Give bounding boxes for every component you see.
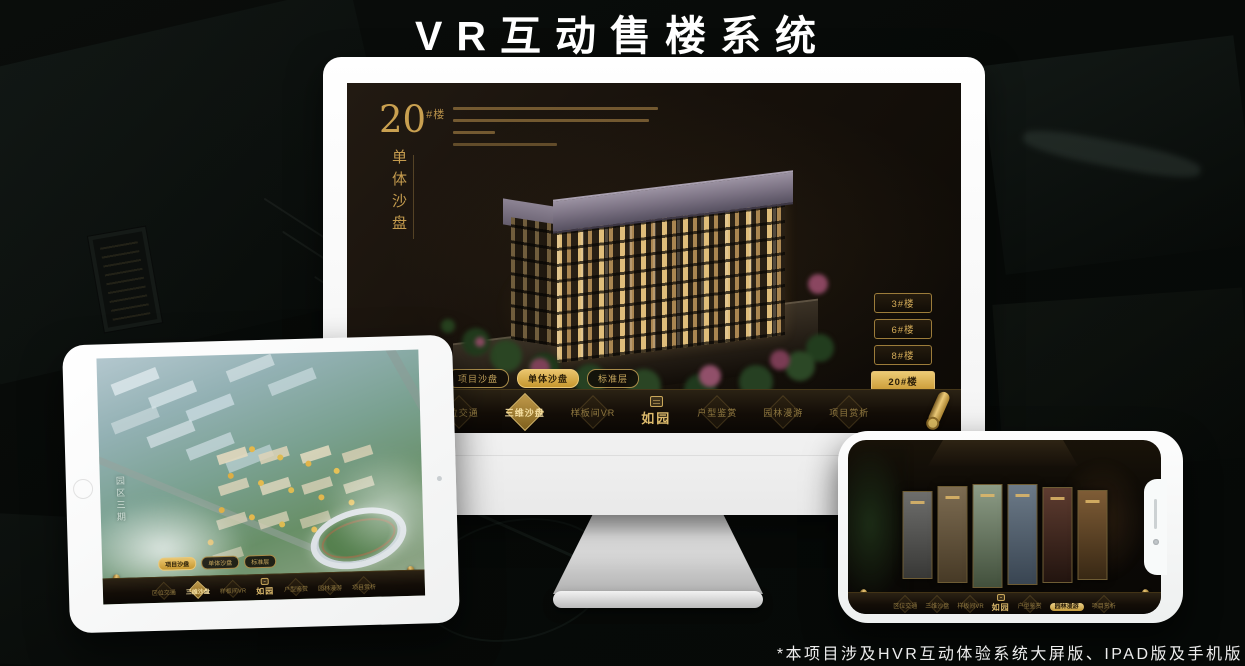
nav-item-project-gallery[interactable]: 项目赏析: [1092, 595, 1116, 613]
floor-button-6[interactable]: 6#楼: [874, 319, 932, 339]
floor-number: 20: [379, 98, 426, 141]
brand-logo[interactable]: 如园: [992, 594, 1010, 613]
page-name-vertical: 单体沙盘: [389, 149, 410, 269]
nav-item-garden-roam[interactable]: 园林漫游: [763, 403, 803, 421]
nav-item-garden-roam[interactable]: 园林漫游: [1050, 595, 1084, 613]
interior-foliage: [848, 446, 908, 602]
building-end-facade: [511, 217, 559, 347]
intro-text-line: [453, 107, 658, 110]
monitor-stand-base: [553, 591, 763, 608]
intro-text-line: [453, 119, 649, 122]
brand-logo-text: 如园: [641, 408, 671, 427]
footnote-text: *本项目涉及HVR互动体验系统大屏版、IPAD版及手机版: [777, 640, 1243, 664]
floor-number-suffix: #楼: [426, 109, 445, 121]
seal-stamp-icon: [261, 578, 269, 585]
phone-device: 区位交通 三维沙盘 样板间VR 如园 户型鉴赏: [838, 431, 1183, 623]
floor-button-3[interactable]: 3#楼: [874, 293, 932, 313]
brand-logo-text: 如园: [992, 602, 1010, 613]
nav-item-unit-plans[interactable]: 户型鉴赏: [284, 577, 309, 596]
scene-gallery: [902, 484, 1107, 588]
seal-stamp-icon: [650, 396, 663, 407]
speaker-slit-icon: [1154, 499, 1157, 529]
floor-button-group: 3#楼 6#楼 8#楼 20#楼: [874, 293, 935, 391]
phone-nav-bar: 区位交通 三维沙盘 样板间VR 如园 户型鉴赏: [848, 592, 1161, 614]
tab-project-sandtable[interactable]: 项目沙盘: [447, 369, 509, 388]
page-title: VR互动售楼系统: [0, 2, 1245, 62]
floor-heading: 20#楼: [379, 101, 445, 138]
nav-item-showroom-vr[interactable]: 样板间VR: [957, 595, 983, 613]
brand-logo[interactable]: 如园: [256, 578, 275, 597]
nav-item-showroom-vr[interactable]: 样板间VR: [219, 579, 246, 598]
gallery-panel[interactable]: [937, 486, 967, 583]
tablet-screen: 园区三期 项目沙盘 单体沙盘 标准层 区位交通 三维沙盘 样板间VR: [96, 350, 425, 605]
brand-logo[interactable]: 如园: [641, 396, 671, 427]
gallery-panel[interactable]: [1007, 484, 1037, 585]
nav-item-location[interactable]: 区位交通: [151, 581, 176, 600]
nav-item-location[interactable]: 区位交通: [893, 595, 917, 613]
gallery-panel[interactable]: [902, 491, 932, 579]
nav-item-unit-plans[interactable]: 户型鉴赏: [697, 403, 737, 421]
model-trees-green: [441, 319, 455, 333]
nav-item-showroom-vr[interactable]: 样板间VR: [571, 403, 616, 421]
floor-button-8[interactable]: 8#楼: [874, 345, 932, 365]
seal-stamp-icon: [997, 594, 1005, 601]
model-trees-pink: [475, 337, 485, 347]
nav-item-unit-plans[interactable]: 户型鉴赏: [1018, 595, 1042, 613]
intro-text-line: [453, 143, 557, 146]
tab-standard-floor[interactable]: 标准层: [587, 369, 639, 388]
nav-item-3d-sandtable[interactable]: 三维沙盘: [505, 403, 545, 421]
intro-paragraph: [453, 107, 658, 155]
floor-button-20[interactable]: 20#楼: [871, 371, 935, 391]
heading-divider: [413, 155, 414, 239]
interior-ceiling-beam: [928, 440, 1078, 466]
aerial-buildings-far: [111, 367, 160, 396]
tab-single-sandtable[interactable]: 单体沙盘: [201, 556, 239, 570]
gallery-panel[interactable]: [972, 484, 1002, 588]
camera-dot-icon: [1153, 539, 1159, 545]
monitor-stand: [553, 514, 763, 594]
tab-project-sandtable[interactable]: 项目沙盘: [158, 557, 196, 571]
nav-item-garden-roam[interactable]: 园林漫游: [318, 576, 343, 595]
scroll-roll-icon[interactable]: [927, 390, 952, 426]
cloud-fog: [321, 451, 425, 565]
phone-screen: 区位交通 三维沙盘 样板间VR 如园 户型鉴赏: [848, 440, 1161, 614]
brand-logo-text: 如园: [256, 586, 274, 597]
nav-item-project-gallery[interactable]: 项目赏析: [829, 403, 869, 421]
nav-item-project-gallery[interactable]: 项目赏析: [352, 575, 377, 594]
building-markers: [249, 446, 255, 452]
zone-label-vertical: 园区三期: [114, 476, 128, 524]
tablet-sub-tabs: 项目沙盘 单体沙盘 标准层: [158, 555, 276, 571]
home-button-icon[interactable]: [73, 479, 94, 500]
gallery-panel[interactable]: [1042, 487, 1072, 583]
tablet-device: 园区三期 项目沙盘 单体沙盘 标准层 区位交通 三维沙盘 样板间VR: [62, 335, 460, 634]
tab-single-sandtable[interactable]: 单体沙盘: [517, 369, 579, 388]
sandtable-sub-tabs: 项目沙盘 单体沙盘 标准层: [447, 369, 639, 388]
aerial-buildings-estate: [216, 446, 248, 465]
background-certificate-frame: [88, 227, 162, 333]
background-river: [1021, 124, 1203, 184]
promo-canvas: VR互动售楼系统 20#楼 单体沙盘: [0, 0, 1245, 666]
camera-dot-icon: [437, 476, 442, 481]
gallery-panel[interactable]: [1077, 490, 1107, 580]
tab-standard-floor[interactable]: 标准层: [244, 555, 276, 569]
nav-item-3d-sandtable[interactable]: 三维沙盘: [185, 580, 210, 599]
phone-notch: [1144, 479, 1167, 575]
intro-text-line: [453, 131, 495, 134]
nav-item-3d-sandtable[interactable]: 三维沙盘: [925, 595, 949, 613]
background-aerial-top-right: [980, 35, 1245, 275]
